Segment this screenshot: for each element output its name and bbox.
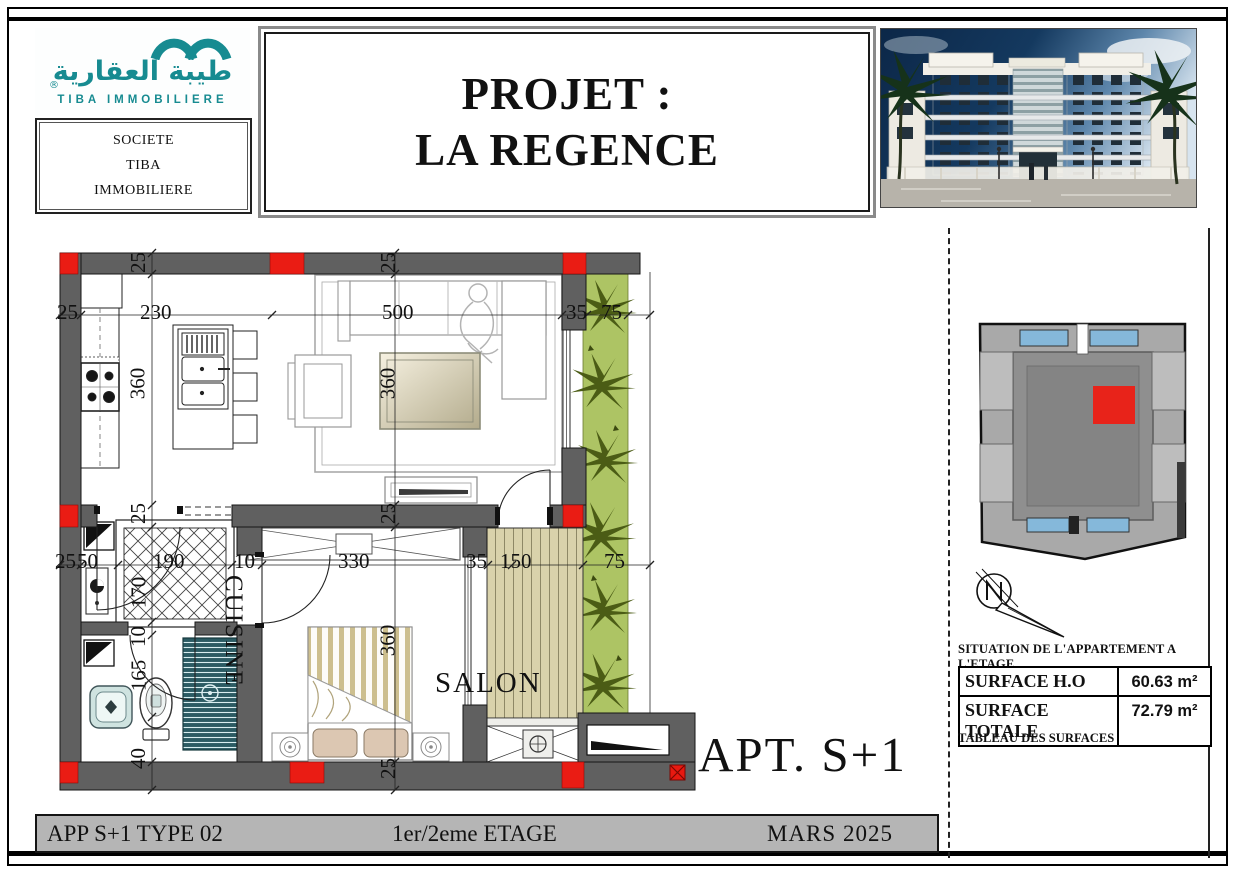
dim-label: 40 [128,748,149,769]
floor-plan: 25 230 500 35 75 25 50 190 10 330 35 150… [50,245,710,805]
slope-mark [587,725,669,755]
dim-label: 360 [127,368,148,400]
dim-label: 360 [377,368,398,400]
column-marker [670,765,685,780]
dim-label: 35 [466,551,487,572]
surface-totale-value: 72.79 m² [1119,697,1210,745]
dim-label: 25 [128,503,149,524]
room-label-cuisine: CUISINE [221,575,246,688]
dim-label: 75 [604,551,625,572]
logo-latin-text: TIBA IMMOBILIERE [35,94,250,106]
apartment-position-marker [1093,386,1135,424]
dim-label: 165 [128,660,149,692]
entrance-hall-tiles [116,520,234,627]
company-name-box: SOCIETE TIBA IMMOBILIERE [35,118,252,214]
room-label-salon: SALON [435,669,542,698]
logo-arabic-text: طيبة العقارية [35,58,250,85]
table-row: SURFACE H.O 60.63 m² [960,668,1210,697]
apartment-type-text: APP S+1 TYPE 02 [47,821,223,847]
bar-stool [233,415,257,443]
company-line-2: TIBA [126,158,161,174]
project-title-line2: LA REGENCE [415,122,719,178]
dim-label: 25 [378,758,399,779]
bar-stool [233,373,257,401]
project-title-box: PROJET : LA REGENCE [258,26,876,218]
dim-label: 170 [128,577,149,609]
surface-table-caption: TABLEAU DES SURFACES [958,731,1114,746]
drawing-sheet: ® طيبة العقارية TIBA IMMOBILIERE SOCIETE… [0,0,1233,871]
dim-label: 50 [77,551,98,572]
dim-label: 500 [382,302,414,323]
top-rule [7,17,1228,21]
building-render-art [881,29,1196,207]
dim-label: 25 [57,302,78,323]
floor-level-text: 1er/2eme ETAGE [392,821,557,847]
bar-stool [233,331,257,359]
dim-label: 25 [378,503,399,524]
dim-label: 230 [140,302,172,323]
date-text: MARS 2025 [767,821,893,847]
salon-furniture [288,275,562,503]
fridge [80,272,122,308]
project-title-line1: PROJET : [462,66,673,122]
dim-label: 360 [377,625,398,657]
pillow [364,729,408,757]
company-line-1: SOCIETE [113,133,174,149]
company-line-3: IMMOBILIERE [94,183,193,199]
panel-divider-dashed [948,228,950,858]
north-arrow-icon [962,566,1072,642]
dim-label: 150 [500,551,532,572]
dim-label: 190 [153,551,185,572]
dim-label: 10 [128,626,149,647]
dim-label: 35 [566,302,587,323]
situation-diagram [965,312,1200,570]
terrace-door [498,470,550,522]
apartment-type-label: APT. S+1 [698,726,907,783]
panel-inner-border [1208,228,1210,858]
surface-ho-value: 60.63 m² [1119,668,1210,695]
dim-label: 25 [128,252,149,273]
building-render [880,28,1197,208]
dim-label: 10 [234,551,255,572]
dim-label: 330 [338,551,370,572]
floor-plan-drawing [50,245,710,805]
surface-ho-label: SURFACE H.O [960,668,1119,695]
dim-label: 25 [378,252,399,273]
dim-label: 25 [55,551,76,572]
title-block-bar: APP S+1 TYPE 02 1er/2eme ETAGE MARS 2025 [35,814,939,853]
company-logo: ® طيبة العقارية TIBA IMMOBILIERE [35,28,250,116]
dim-label: 75 [601,302,622,323]
pillow [313,729,357,757]
